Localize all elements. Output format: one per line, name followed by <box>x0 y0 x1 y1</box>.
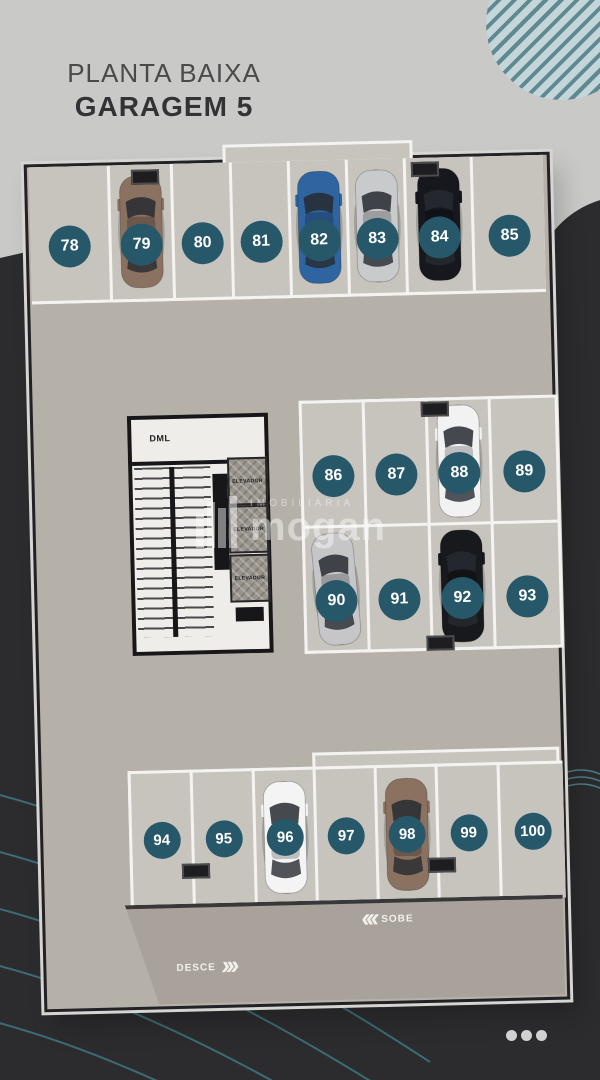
spot-number-badge: 80 <box>181 222 224 265</box>
ramp-up-label: SOBE <box>381 913 414 925</box>
spot-number-badge: 93 <box>506 575 549 618</box>
spot-number-badge: 89 <box>503 450 546 493</box>
garage-ramp: ‹‹‹ SOBE DESCE ››› <box>125 895 565 1006</box>
parking-row-top: 78 79 80 81 82 83 84 <box>29 155 546 305</box>
spot-number-badge: 97 <box>327 817 365 855</box>
parking-spot-100: 100 <box>500 764 566 899</box>
parking-spot-93: 93 <box>494 523 561 647</box>
title-line2: GARAGEM 5 <box>48 91 280 123</box>
parking-spot-85: 85 <box>473 155 546 291</box>
parking-spot-82: 82 <box>290 160 348 295</box>
chevrons-left-icon: ‹‹‹ <box>360 907 377 932</box>
core-wall <box>236 607 264 622</box>
spot-number-badge: 81 <box>240 221 283 264</box>
parking-spot-98: 98 <box>377 767 438 902</box>
elevator-label: ELEVADOR <box>235 575 266 581</box>
ellipsis-dots-decoration <box>506 1030 547 1041</box>
parking-spot-92: 92 <box>431 524 494 647</box>
spot-number-badge: 94 <box>143 821 181 859</box>
title-line1: PLANTA BAIXA <box>48 58 280 89</box>
parking-spot-80: 80 <box>173 163 232 298</box>
wave-lines-icon <box>562 768 600 794</box>
striped-circle-decoration <box>486 0 600 100</box>
parking-spot-89: 89 <box>491 398 558 522</box>
spot-number-badge: 95 <box>205 820 243 858</box>
spot-number-badge: 87 <box>375 453 418 496</box>
spot-number-badge: 85 <box>488 215 531 258</box>
spot-number-badge: 100 <box>514 812 552 850</box>
parking-spot-81: 81 <box>232 161 290 296</box>
building-logo-icon <box>196 494 240 548</box>
spot-number-badge: 99 <box>450 814 488 852</box>
elevator-label: ELEVADOR <box>232 478 263 484</box>
parking-spot-83: 83 <box>348 158 406 293</box>
realtor-watermark: IMOBILIÁRIA mogan <box>196 494 386 548</box>
watermark-brand: mogan <box>250 509 386 545</box>
dml-label: DML <box>149 433 170 444</box>
floor-marker <box>131 169 159 185</box>
ramp-down-label: DESCE <box>176 962 216 974</box>
staircase <box>134 466 214 638</box>
parking-spot-88: 88 <box>428 399 491 522</box>
floor-marker <box>426 635 454 651</box>
page-title: PLANTA BAIXA GARAGEM 5 <box>48 58 280 123</box>
elevator-3: ELEVADOR <box>229 554 270 603</box>
parking-spot-97: 97 <box>316 768 377 903</box>
floor-marker <box>428 857 456 873</box>
ramp-up-sign: ‹‹‹ SOBE <box>361 906 414 932</box>
parking-spot-95: 95 <box>193 771 255 906</box>
ramp-down-sign: DESCE ››› <box>176 955 236 981</box>
spot-number-badge: 91 <box>378 578 421 621</box>
spot-number-badge: 86 <box>312 455 355 498</box>
parking-spot-99: 99 <box>438 765 500 900</box>
garage-floor-plan: 78 79 80 81 82 83 84 <box>24 152 571 1013</box>
chevrons-right-icon: ››› <box>220 955 237 980</box>
parking-row-bottom: 94 95 96 97 98 99 100 <box>128 761 566 909</box>
parking-spot-96: 96 <box>255 770 316 905</box>
spot-number-badge: 78 <box>48 225 91 268</box>
parking-spot-94: 94 <box>131 773 193 908</box>
watermark-text: IMOBILIÁRIA mogan <box>250 498 386 545</box>
page-background: PLANTA BAIXA GARAGEM 5 78 79 80 81 82 <box>0 0 600 1080</box>
floor-marker <box>411 161 439 177</box>
floor-marker <box>182 863 210 879</box>
parking-spot-78: 78 <box>29 166 110 302</box>
floor-marker <box>421 401 449 417</box>
